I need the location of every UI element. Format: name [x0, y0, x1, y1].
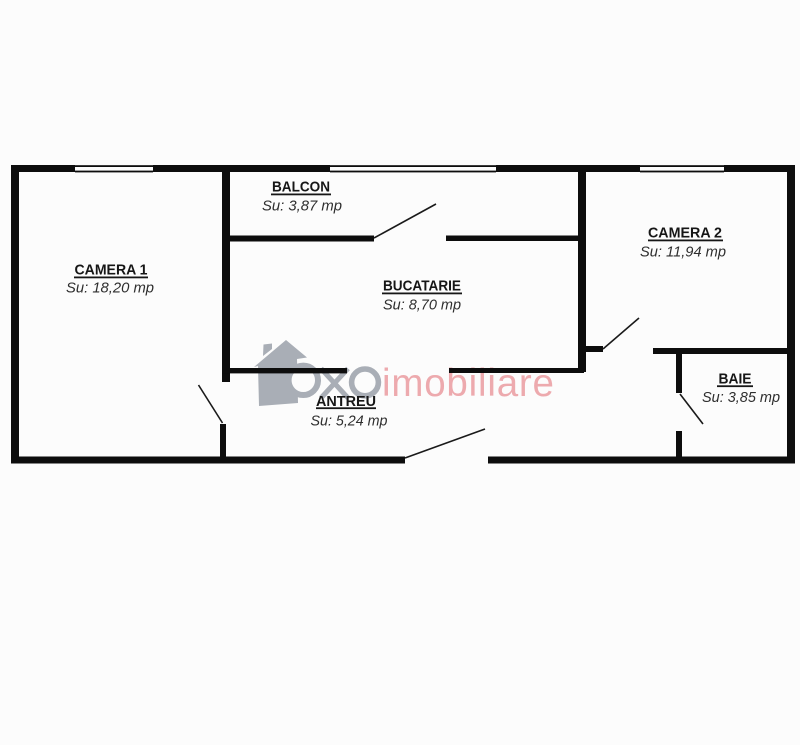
svg-text:Su: 18,20 mp: Su: 18,20 mp — [66, 280, 154, 297]
svg-text:Su: 11,94 mp: Su: 11,94 mp — [640, 244, 726, 261]
svg-text:BUCATARIE: BUCATARIE — [383, 278, 461, 295]
svg-text:Su: 3,85 mp: Su: 3,85 mp — [702, 389, 780, 406]
svg-text:CAMERA 2: CAMERA 2 — [648, 225, 722, 242]
svg-text:BAIE: BAIE — [719, 371, 752, 388]
svg-text:Su: 3,87 mp: Su: 3,87 mp — [262, 198, 342, 215]
svg-text:ANTREU: ANTREU — [316, 393, 376, 410]
svg-text:Su: 5,24 mp: Su: 5,24 mp — [311, 413, 388, 430]
svg-text:CAMERA 1: CAMERA 1 — [75, 262, 148, 279]
svg-text:BALCON: BALCON — [272, 179, 330, 196]
svg-text:Su: 8,70 mp: Su: 8,70 mp — [383, 297, 461, 314]
